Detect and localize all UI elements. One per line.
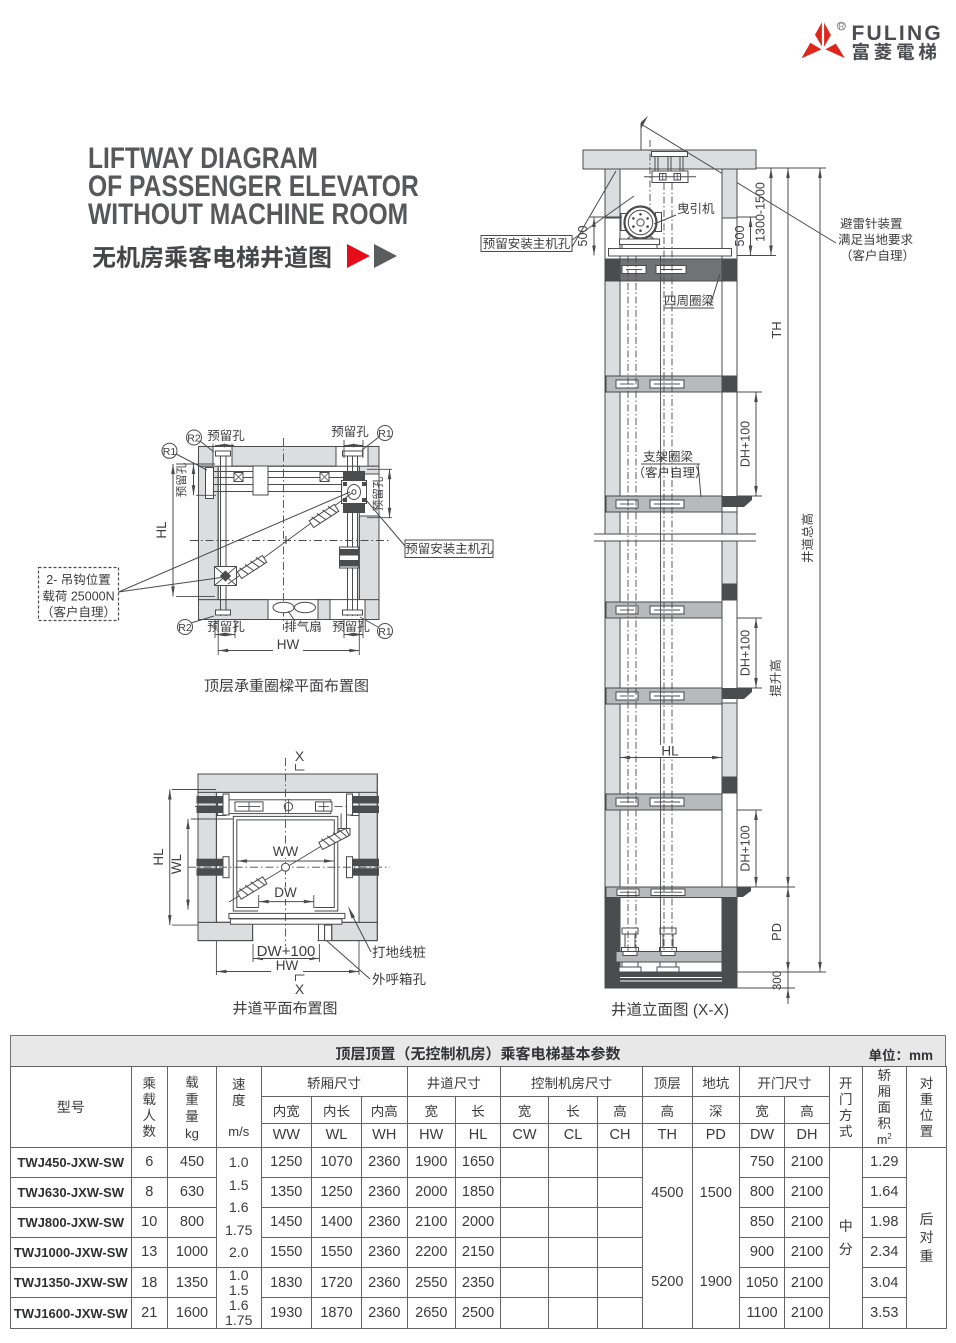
svg-text:四周圈梁: 四周圈梁 [664, 290, 715, 309]
svg-text:X: X [295, 981, 305, 997]
svg-text:HL: HL [154, 521, 169, 539]
svg-text:TH: TH [769, 321, 784, 338]
svg-text:DW: DW [274, 885, 297, 900]
svg-text:预留孔: 预留孔 [174, 462, 190, 497]
svg-text:R1: R1 [378, 626, 392, 638]
svg-text:R2: R2 [178, 622, 192, 634]
svg-text:WL: WL [169, 853, 184, 874]
svg-text:提升高: 提升高 [765, 659, 784, 697]
svg-text:预留孔: 预留孔 [207, 425, 245, 444]
svg-text:顶层承重圈樑平面布置图: 顶层承重圈樑平面布置图 [204, 675, 369, 696]
svg-text:X: X [295, 748, 305, 764]
svg-text:预留孔: 预留孔 [370, 476, 386, 511]
svg-text:预留安装主机孔: 预留安装主机孔 [483, 233, 571, 252]
svg-text:（客户自理）: （客户自理） [41, 602, 116, 621]
svg-text:（客户自理）: （客户自理） [840, 245, 915, 264]
svg-text:预留孔: 预留孔 [331, 421, 369, 440]
svg-text:DH+100: DH+100 [739, 421, 753, 467]
svg-text:PD: PD [769, 923, 784, 941]
svg-text:打地线桩: 打地线桩 [372, 941, 426, 961]
svg-text:预留安装主机孔: 预留安装主机孔 [405, 538, 493, 557]
svg-text:井道立面图 (X-X): 井道立面图 (X-X) [611, 998, 729, 1020]
svg-text:井道总高: 井道总高 [797, 513, 816, 563]
svg-text:HL: HL [151, 848, 166, 866]
svg-text:预留孔: 预留孔 [207, 616, 245, 635]
svg-text:R2: R2 [187, 433, 201, 445]
svg-text:DH+100: DH+100 [739, 630, 753, 676]
svg-text:R1: R1 [378, 428, 392, 440]
svg-text:1300-1500: 1300-1500 [754, 182, 768, 242]
svg-text:WW: WW [273, 844, 299, 859]
svg-text:预留孔: 预留孔 [332, 616, 370, 635]
svg-text:HL: HL [661, 744, 679, 759]
svg-text:300: 300 [772, 971, 784, 990]
svg-text:HW: HW [276, 958, 299, 973]
svg-text:井道平面布置图: 井道平面布置图 [232, 998, 337, 1019]
svg-text:DH+100: DH+100 [739, 825, 753, 871]
svg-text:R1: R1 [163, 446, 177, 458]
svg-text:排气扇: 排气扇 [284, 616, 322, 635]
svg-text:（客户自理）: （客户自理） [632, 462, 707, 481]
svg-text:曳引机: 曳引机 [677, 198, 715, 217]
svg-text:HW: HW [277, 637, 300, 652]
svg-text:外呼箱孔: 外呼箱孔 [372, 968, 426, 988]
svg-text:500: 500 [733, 226, 747, 247]
